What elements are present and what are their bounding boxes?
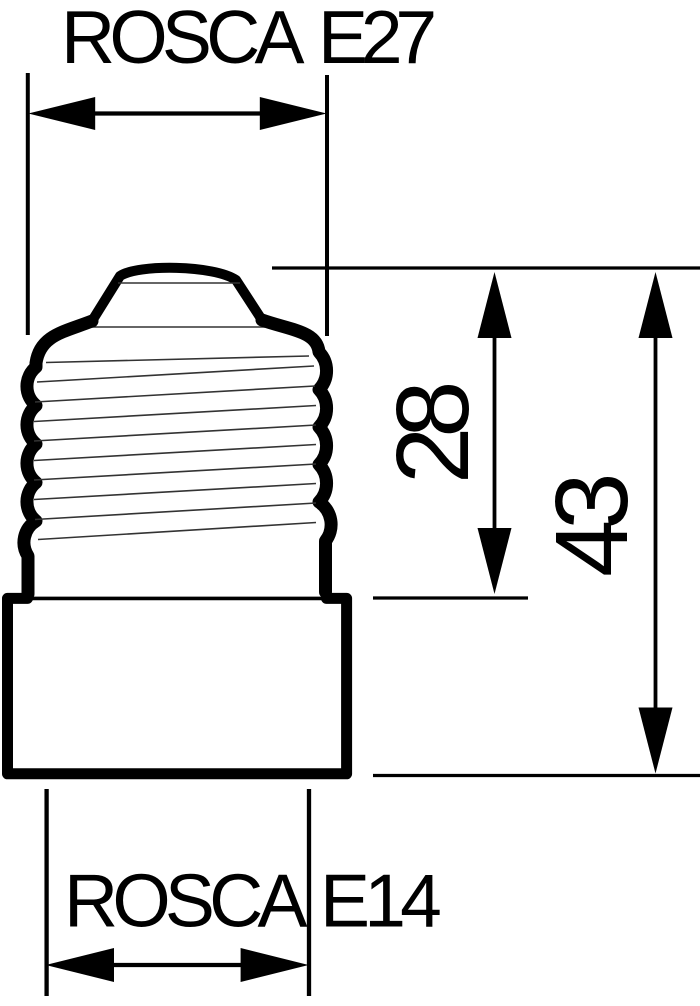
svg-text:43: 43 (534, 477, 649, 577)
svg-text:E14: E14 (320, 859, 440, 943)
svg-text:ROSCA: ROSCA (61, 0, 304, 79)
svg-text:28: 28 (375, 385, 490, 484)
svg-text:E27: E27 (318, 0, 433, 79)
svg-text:ROSCA: ROSCA (64, 859, 307, 943)
